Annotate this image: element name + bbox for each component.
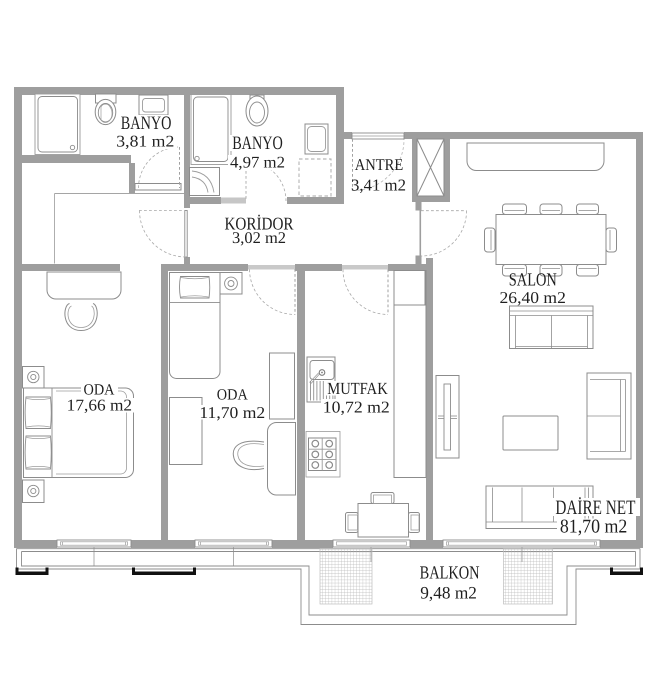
svg-text:BANYO: BANYO xyxy=(232,133,283,154)
svg-text:10,72 m2: 10,72 m2 xyxy=(323,398,390,417)
svg-text:MUTFAK: MUTFAK xyxy=(327,379,388,398)
svg-text:4,97 m2: 4,97 m2 xyxy=(230,152,285,171)
svg-text:9,48 m2: 9,48 m2 xyxy=(420,583,477,603)
svg-text:81,70 m2: 81,70 m2 xyxy=(560,517,628,538)
svg-text:11,70 m2: 11,70 m2 xyxy=(199,403,265,422)
svg-text:DAİRE NET: DAİRE NET xyxy=(555,497,635,519)
svg-text:3,81 m2: 3,81 m2 xyxy=(116,131,174,150)
svg-text:17,66 m2: 17,66 m2 xyxy=(67,396,132,415)
svg-text:26,40 m2: 26,40 m2 xyxy=(500,288,566,307)
svg-text:3,41 m2: 3,41 m2 xyxy=(351,176,406,195)
svg-text:3,02 m2: 3,02 m2 xyxy=(232,228,286,247)
svg-text:BALKON: BALKON xyxy=(420,564,480,584)
svg-text:ANTRE: ANTRE xyxy=(355,155,404,174)
svg-text:ODA: ODA xyxy=(217,387,249,404)
